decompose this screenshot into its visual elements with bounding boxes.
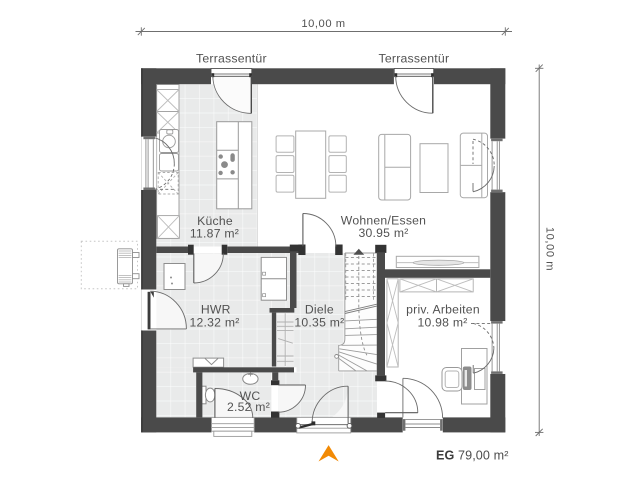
svg-text:Terrassentür: Terrassentür xyxy=(379,52,450,66)
svg-text:10,00 m: 10,00 m xyxy=(301,18,345,30)
svg-text:10.98 m²: 10.98 m² xyxy=(417,315,467,329)
svg-text:11.87 m²: 11.87 m² xyxy=(190,227,239,241)
svg-text:30.95 m²: 30.95 m² xyxy=(358,226,408,240)
svg-text:10,00 m: 10,00 m xyxy=(544,227,556,271)
svg-text:EG 79,00 m²: EG 79,00 m² xyxy=(436,448,509,462)
svg-text:Terrassentür: Terrassentür xyxy=(196,52,267,66)
svg-text:2.52 m²: 2.52 m² xyxy=(227,400,270,414)
svg-text:10.35 m²: 10.35 m² xyxy=(294,315,344,329)
svg-text:12.32 m²: 12.32 m² xyxy=(189,315,239,329)
